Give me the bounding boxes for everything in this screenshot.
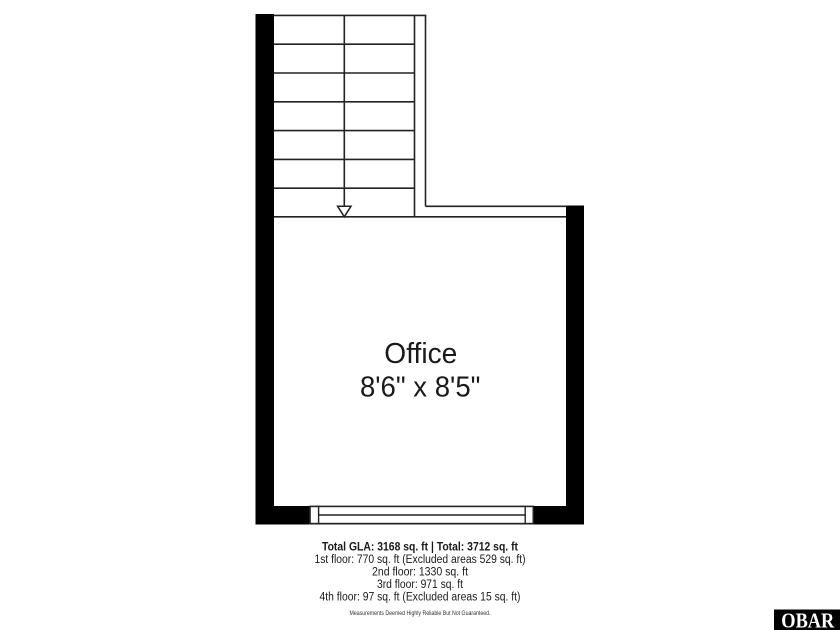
svg-text:2nd floor: 1330 sq. ft: 2nd floor: 1330 sq. ft — [372, 567, 469, 579]
svg-text:Measurements Deemed Highly Rel: Measurements Deemed Highly Reliable But … — [350, 610, 491, 617]
svg-text:8'6" x 8'5": 8'6" x 8'5" — [360, 371, 481, 403]
svg-text:Office: Office — [384, 338, 457, 370]
svg-text:1st floor: 770 sq. ft (Exclude: 1st floor: 770 sq. ft (Excluded areas 52… — [315, 554, 526, 566]
svg-text:3rd floor: 971 sq. ft: 3rd floor: 971 sq. ft — [377, 579, 464, 591]
svg-text:OBAR: OBAR — [781, 609, 835, 630]
svg-text:Total GLA: 3168 sq. ft | Total: Total GLA: 3168 sq. ft | Total: 3712 sq.… — [322, 541, 518, 553]
svg-text:4th floor: 97 sq. ft (Excluded: 4th floor: 97 sq. ft (Excluded areas 15 … — [320, 591, 521, 603]
